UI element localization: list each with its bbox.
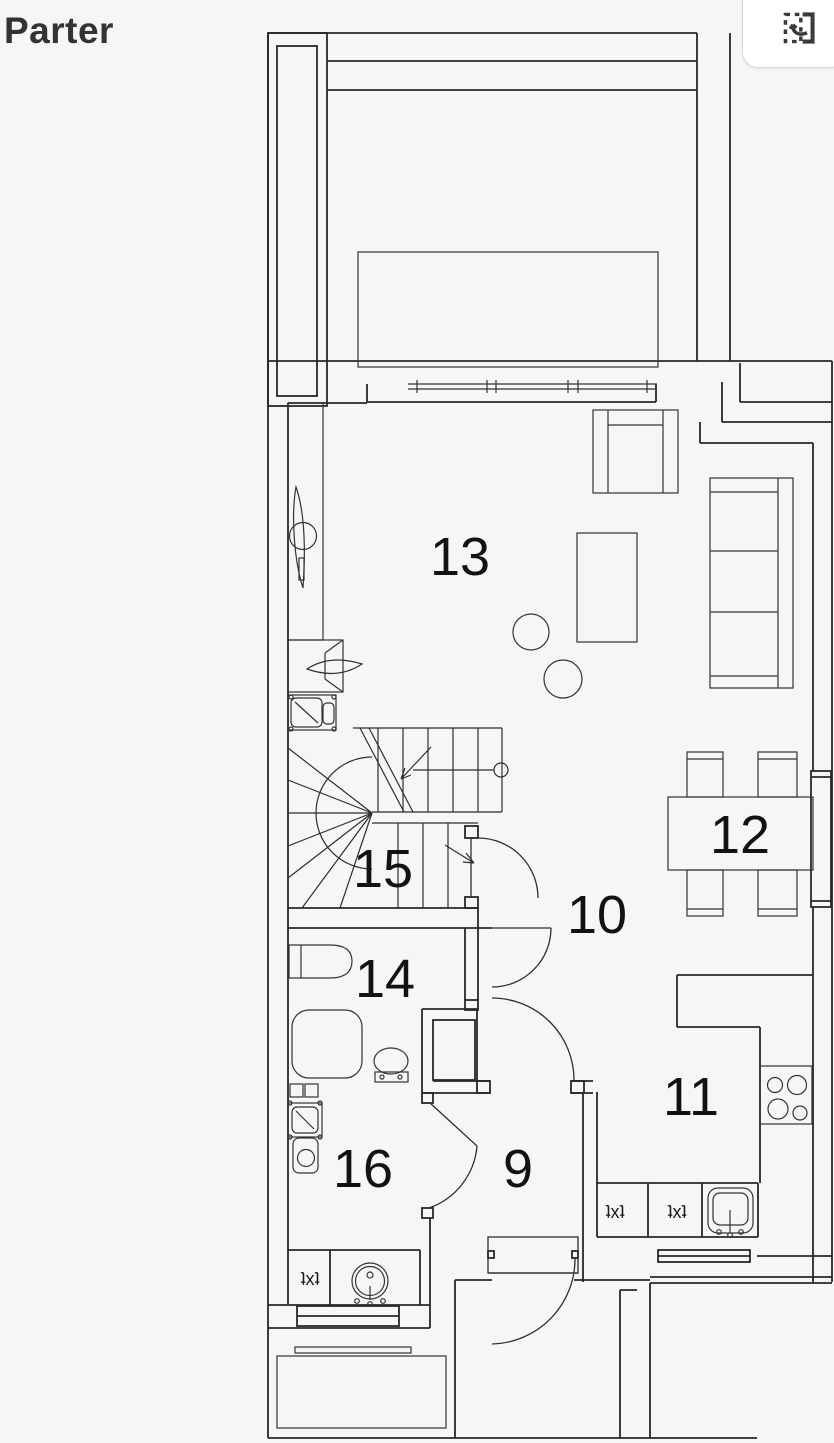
- walls: [268, 33, 832, 1438]
- room-label-13: 13: [430, 527, 490, 587]
- room-labels: 9 10 11 12 13 14 15 16: [333, 527, 770, 1199]
- plant-leaf: [307, 660, 362, 673]
- kitchen-cabinet: [288, 640, 343, 692]
- washing-machine: [289, 945, 352, 978]
- floor-plan-drawing: 9 10 11 12 13 14 15 16 ʇxʇ ʇxʇ ʇxʇ: [0, 0, 834, 1443]
- entry-terrace-slab: [277, 1347, 446, 1428]
- kitchenette-sink: [288, 695, 336, 731]
- shaft-block: [433, 1020, 475, 1080]
- sofa: [710, 478, 793, 688]
- wc-sink: [288, 1101, 322, 1139]
- room-label-12: 12: [710, 805, 770, 865]
- window-dining: [811, 771, 831, 907]
- doors: [429, 838, 578, 1344]
- terrace-table: [358, 252, 658, 367]
- room-label-14: 14: [355, 949, 415, 1009]
- window-room16: [297, 1306, 399, 1326]
- stair-arrow-down: [445, 845, 474, 863]
- room-label-10: 10: [567, 885, 627, 945]
- door-wc-to-entry: [429, 1103, 477, 1208]
- pouf: [544, 660, 582, 698]
- wall-shelf: [290, 1084, 303, 1097]
- pouf: [513, 614, 549, 650]
- wall-plant: [290, 487, 317, 588]
- wc-toilet: [293, 1138, 318, 1173]
- fixture-label-txt: ʇxʇ: [605, 1202, 624, 1222]
- toilet-14: [374, 1048, 408, 1082]
- door-stairs-to-hall: [471, 838, 538, 898]
- coffee-table: [577, 533, 637, 642]
- door-bathroom: [492, 928, 551, 987]
- stair-arrow-up: [401, 747, 431, 779]
- shower: [292, 1010, 362, 1078]
- window-kitchen: [658, 1250, 750, 1262]
- wall-shelf: [305, 1084, 318, 1097]
- room-label-11: 11: [663, 1067, 719, 1127]
- utility-basin: [352, 1263, 388, 1306]
- kitchen-sink: [708, 1188, 753, 1237]
- cooktop: [760, 1066, 812, 1124]
- entrance-door: [488, 1237, 578, 1344]
- fixture-label-txt: ʇxʇ: [667, 1202, 686, 1222]
- sliding-door: [408, 380, 657, 393]
- door-hall-to-entry: [492, 998, 574, 1080]
- armchair: [593, 410, 678, 493]
- stair-newel: [494, 763, 508, 777]
- room-label-15: 15: [353, 839, 413, 899]
- fixture-label-txt: ʇxʇ: [300, 1269, 319, 1289]
- room-label-16: 16: [333, 1139, 393, 1199]
- fixture-labels: ʇxʇ ʇxʇ ʇxʇ: [300, 1202, 686, 1289]
- room-label-9: 9: [503, 1139, 533, 1199]
